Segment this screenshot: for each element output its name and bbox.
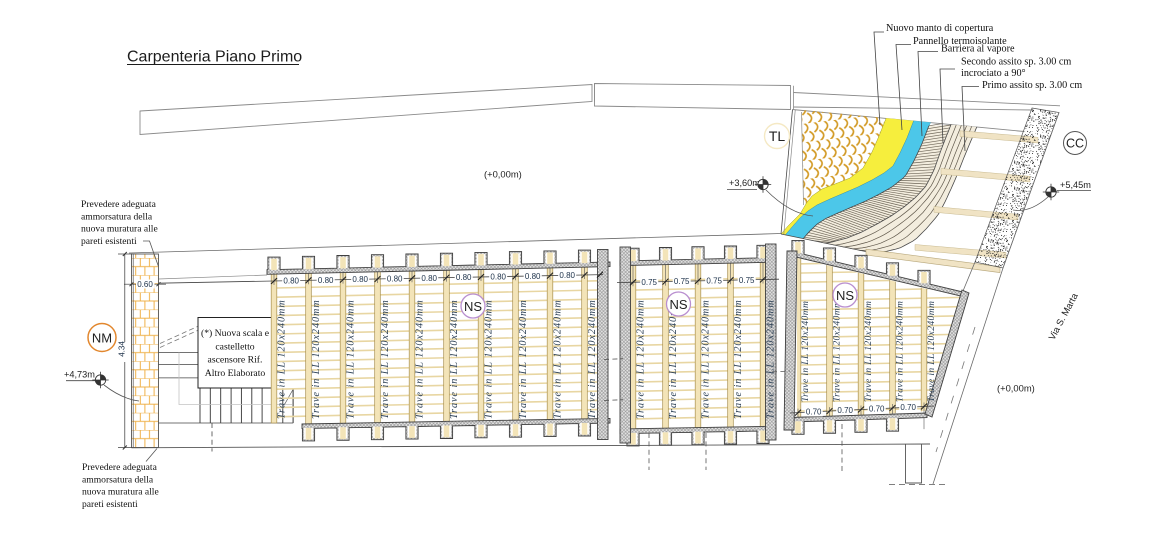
svg-text:Trave in LL 120x240mm: Trave in LL 120x240mm (832, 301, 843, 402)
svg-text:pareti esistenti: pareti esistenti (81, 236, 137, 247)
svg-text:Trave in LL 120x240mm: Trave in LL 120x240mm (346, 299, 357, 419)
svg-text:0.75: 0.75 (674, 277, 690, 286)
svg-text:+4,73m: +4,73m (64, 370, 95, 380)
svg-text:+5,45m: +5,45m (1060, 180, 1091, 190)
svg-text:Trave in LL 120x240mm: Trave in LL 120x240mm (484, 299, 495, 419)
svg-text:ascensore Rif.: ascensore Rif. (208, 355, 263, 366)
svg-text:Trave in LL 120x240mm: Trave in LL 120x240mm (449, 299, 460, 419)
svg-text:0.80: 0.80 (456, 273, 472, 282)
svg-text:0.80: 0.80 (318, 276, 334, 285)
svg-text:Trave in LL 120x240mm: Trave in LL 120x240mm (701, 299, 712, 419)
svg-text:Trave in LL 120x240mm: Trave in LL 120x240mm (733, 299, 744, 419)
svg-text:Trave in LL 120x240mm: Trave in LL 120x240mm (587, 299, 598, 419)
svg-text:Trave in LL 120x240mm: Trave in LL 120x240mm (800, 301, 811, 402)
svg-text:Trave in LL 120x240mm: Trave in LL 120x240mm (553, 299, 564, 419)
svg-text:Trave in LL 120x240mm: Trave in LL 120x240mm (766, 299, 777, 419)
svg-text:Trave in LL 120x240mm: Trave in LL 120x240mm (863, 301, 874, 402)
svg-text:NS: NS (836, 288, 854, 303)
svg-text:0.80: 0.80 (559, 271, 575, 280)
svg-text:Altro Elaborato: Altro Elaborato (205, 368, 266, 379)
svg-text:CC: CC (1066, 137, 1084, 151)
svg-text:nuova muratura alle: nuova muratura alle (81, 224, 158, 235)
svg-text:Trave in LL 120x240mm: Trave in LL 120x240mm (668, 299, 679, 419)
svg-text:NM: NM (92, 331, 112, 346)
svg-text:0.75: 0.75 (739, 276, 755, 285)
svg-text:ammorsatura della: ammorsatura della (82, 474, 154, 485)
svg-text:NS: NS (464, 299, 482, 314)
svg-text:Prevedere adeguata: Prevedere adeguata (81, 199, 157, 210)
svg-text:0.70: 0.70 (900, 403, 916, 412)
svg-text:Trave in LL 120x240mm: Trave in LL 120x240mm (311, 299, 322, 419)
svg-text:0.75: 0.75 (706, 277, 722, 286)
svg-text:4.34: 4.34 (118, 341, 127, 357)
svg-text:0.80: 0.80 (283, 277, 299, 286)
svg-text:0.70: 0.70 (837, 406, 853, 415)
svg-text:Secondo assito sp. 3.00 cm: Secondo assito sp. 3.00 cm (961, 57, 1071, 68)
svg-text:+3,60m: +3,60m (729, 178, 760, 188)
svg-text:0.70: 0.70 (869, 405, 885, 414)
svg-text:castelletto: castelletto (215, 341, 254, 352)
svg-text:Trave in LL 120x240mm: Trave in LL 120x240mm (415, 299, 426, 419)
svg-text:nuova muratura alle: nuova muratura alle (82, 487, 159, 498)
svg-text:TL: TL (769, 128, 786, 144)
svg-text:Nuovo manto di copertura: Nuovo manto di copertura (886, 23, 994, 34)
svg-text:(+0,00m): (+0,00m) (484, 169, 522, 180)
svg-text:Trave in LL 120x240mm: Trave in LL 120x240mm (518, 299, 529, 419)
svg-text:Trave in LL 120x240mm: Trave in LL 120x240mm (277, 299, 288, 419)
svg-text:Trave in LL 120x240mm: Trave in LL 120x240mm (380, 299, 391, 419)
svg-text:0.80: 0.80 (421, 274, 437, 283)
svg-text:0.60: 0.60 (137, 280, 153, 289)
svg-text:(+0,00m): (+0,00m) (997, 383, 1035, 394)
svg-text:Trave in LL 120x240mm: Trave in LL 120x240mm (926, 301, 937, 402)
svg-text:Primo assito sp. 3.00 cm: Primo assito sp. 3.00 cm (982, 80, 1082, 91)
svg-text:Prevedere adeguata: Prevedere adeguata (82, 462, 158, 473)
svg-text:0.80: 0.80 (490, 273, 506, 282)
svg-text:NS: NS (669, 297, 687, 312)
svg-text:0.80: 0.80 (352, 275, 368, 284)
svg-text:0.70: 0.70 (806, 408, 822, 417)
svg-text:0.80: 0.80 (525, 272, 541, 281)
svg-text:pareti esistenti: pareti esistenti (82, 499, 138, 510)
svg-text:Trave in LL 120x240mm: Trave in LL 120x240mm (895, 301, 906, 402)
svg-text:incrociato a 90°: incrociato a 90° (961, 68, 1026, 79)
svg-text:0.75: 0.75 (641, 278, 657, 287)
svg-text:Trave in LL 120x240mm: Trave in LL 120x240mm (636, 299, 647, 419)
svg-text:Barriera al vapore: Barriera al vapore (941, 44, 1015, 55)
svg-text:(*) Nuova scala e: (*) Nuova scala e (201, 328, 269, 339)
svg-text:ammorsatura della: ammorsatura della (81, 211, 153, 222)
svg-text:0.80: 0.80 (387, 275, 403, 284)
svg-text:Carpenteria Piano Primo: Carpenteria Piano Primo (127, 49, 302, 66)
